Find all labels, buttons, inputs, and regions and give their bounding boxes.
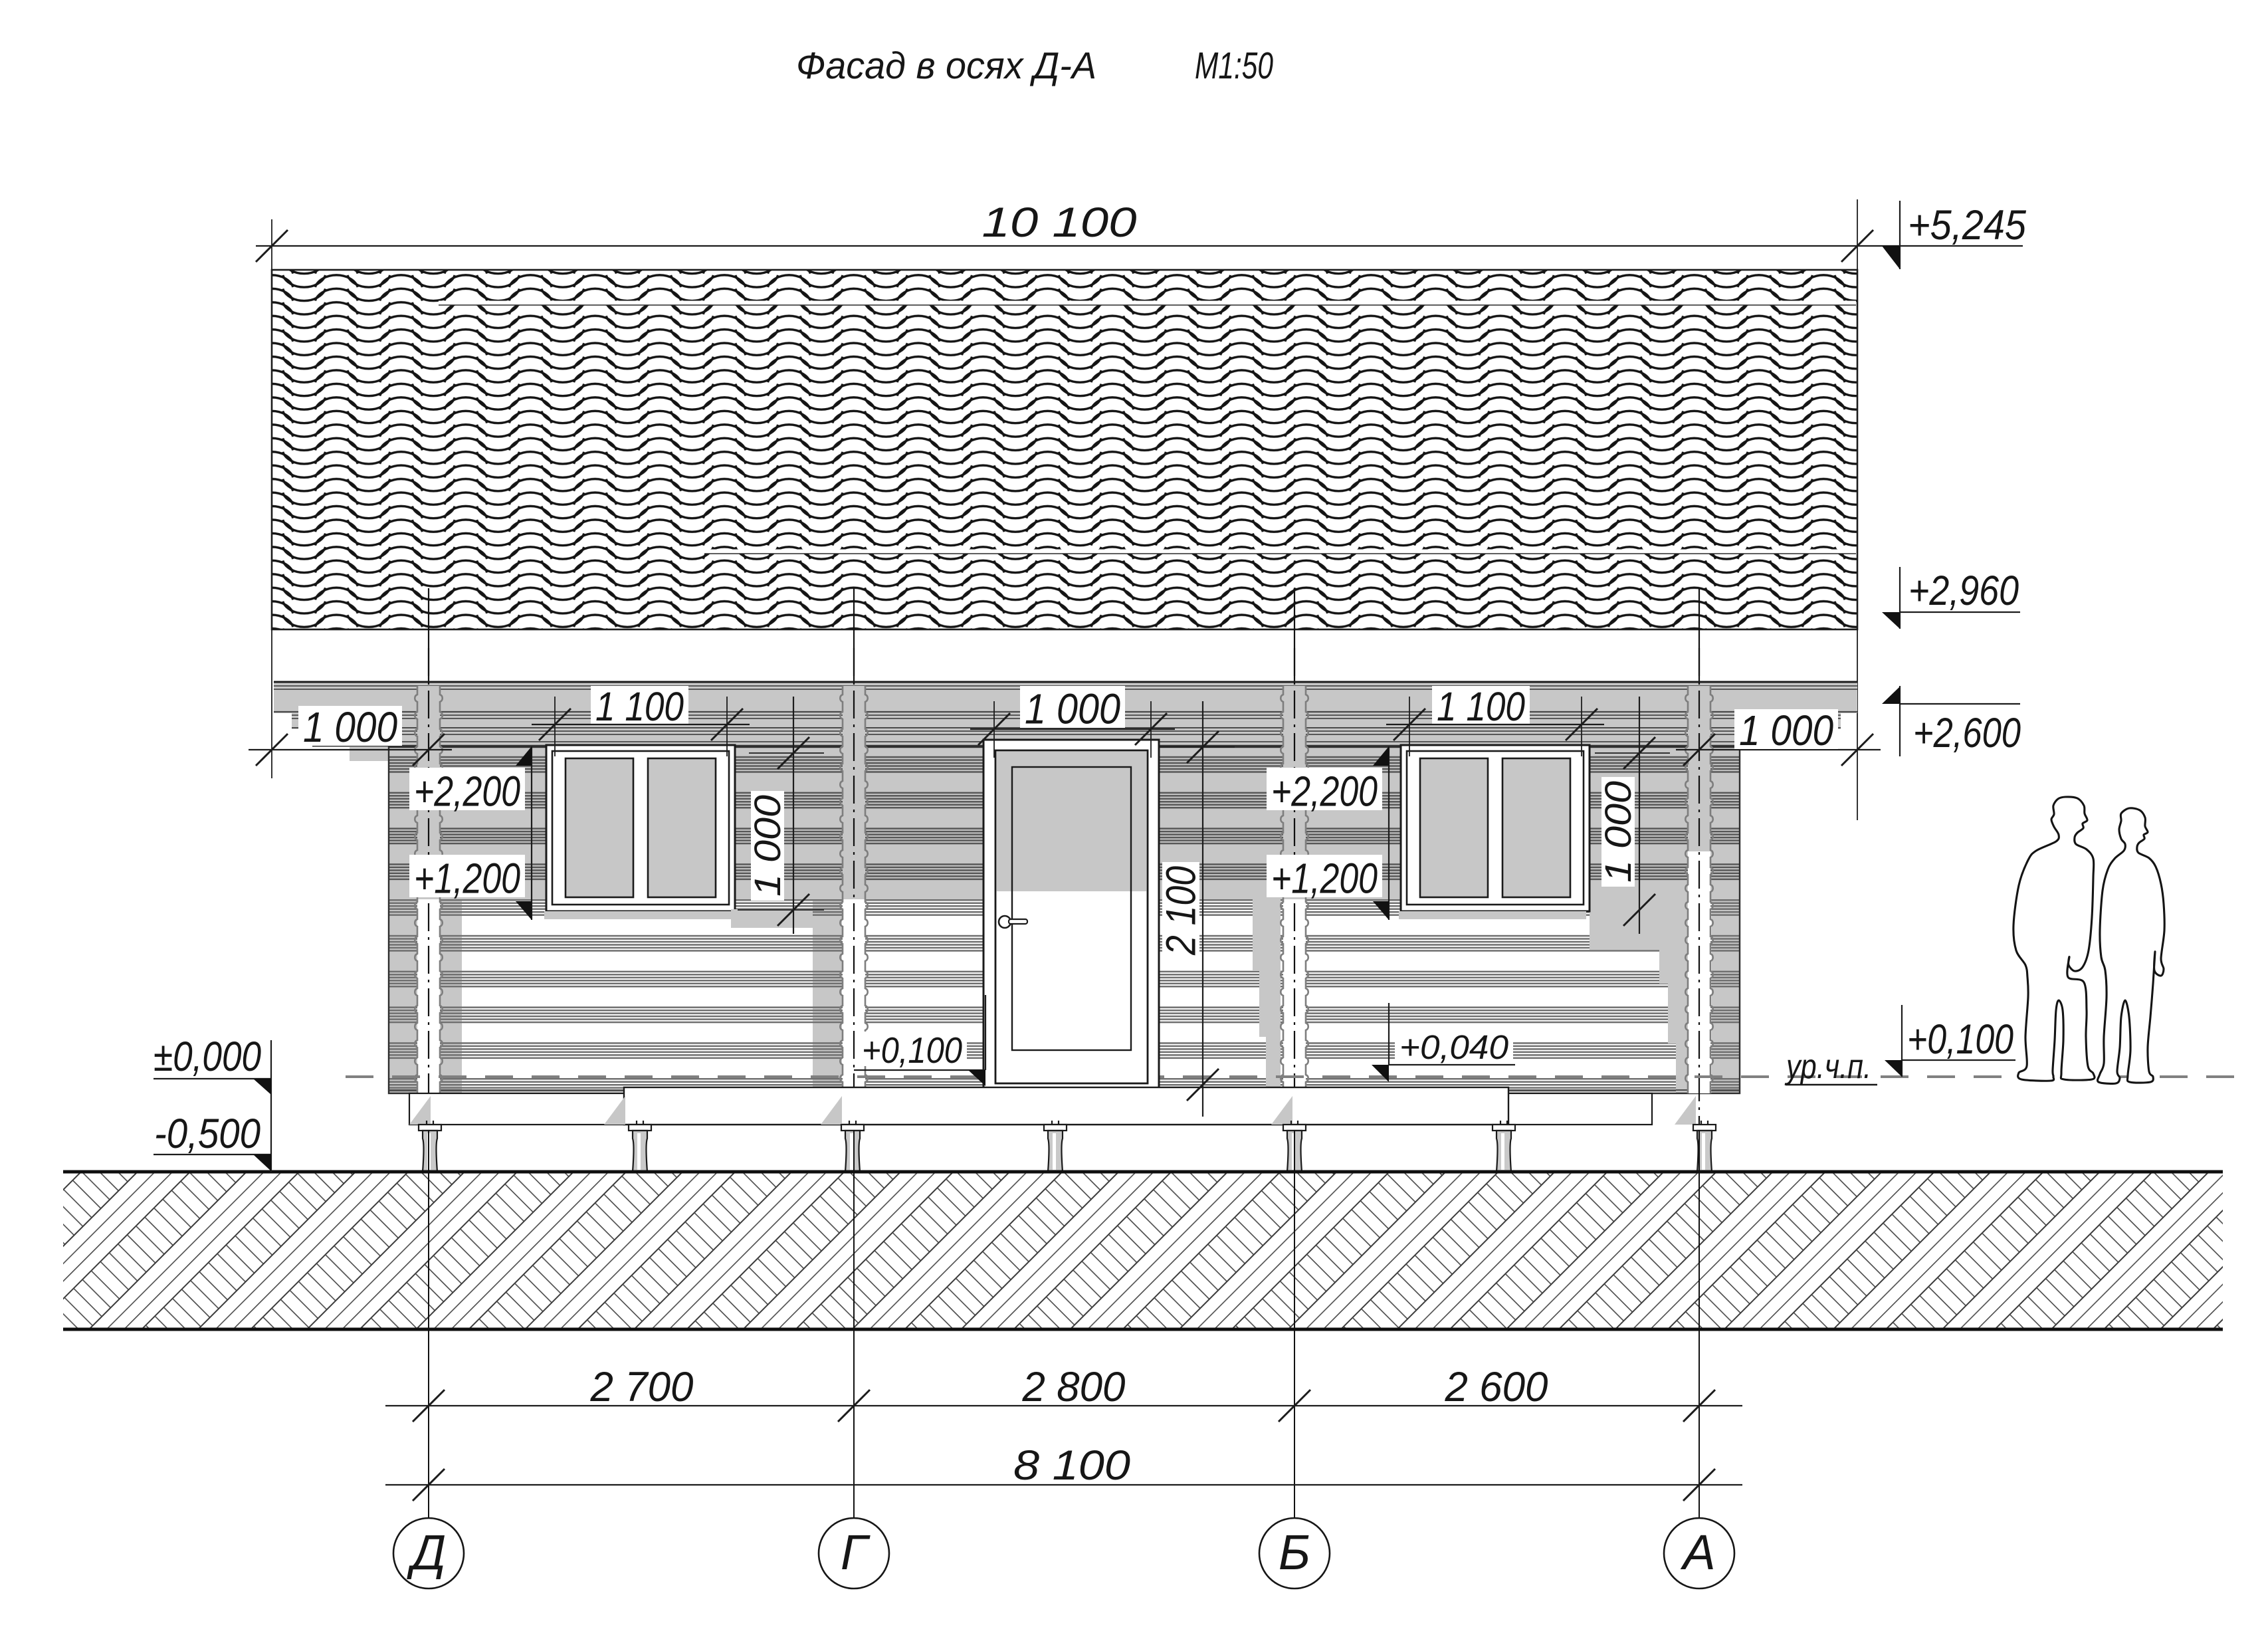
svg-text:+0,100: +0,100 <box>1907 1016 2013 1063</box>
svg-text:-0,500: -0,500 <box>154 1111 260 1157</box>
svg-text:1 000: 1 000 <box>1025 685 1120 733</box>
svg-text:М1:50: М1:50 <box>1195 45 1273 87</box>
svg-text:+1,200: +1,200 <box>1271 855 1378 903</box>
svg-text:1 000: 1 000 <box>1597 781 1639 883</box>
svg-text:±0,000: ±0,000 <box>154 1034 261 1080</box>
svg-text:1 100: 1 100 <box>1437 684 1525 730</box>
svg-text:+2,200: +2,200 <box>414 768 520 816</box>
svg-text:8 100: 8 100 <box>1013 1442 1130 1489</box>
svg-text:А: А <box>1680 1525 1715 1580</box>
svg-text:1 000: 1 000 <box>746 795 788 897</box>
svg-text:2 100: 2 100 <box>1158 866 1204 956</box>
svg-text:+0,100: +0,100 <box>862 1030 962 1071</box>
svg-text:2 700: 2 700 <box>590 1364 694 1410</box>
svg-text:+2,960: +2,960 <box>1908 568 2019 614</box>
svg-text:+5,245: +5,245 <box>1908 202 2027 249</box>
svg-text:+0,040: +0,040 <box>1399 1028 1508 1066</box>
svg-text:Фасад в осях Д-А: Фасад в осях Д-А <box>796 45 1096 87</box>
svg-text:1 000: 1 000 <box>1739 707 1833 754</box>
svg-text:2 800: 2 800 <box>1022 1364 1126 1410</box>
svg-text:10 100: 10 100 <box>982 199 1137 246</box>
svg-text:2 600: 2 600 <box>1445 1364 1548 1410</box>
svg-text:1 100: 1 100 <box>595 684 684 730</box>
svg-text:+2,600: +2,600 <box>1913 710 2021 756</box>
svg-text:Б: Б <box>1279 1525 1310 1580</box>
svg-text:ур.ч.п.: ур.ч.п. <box>1785 1047 1871 1086</box>
svg-text:1 000: 1 000 <box>303 704 397 751</box>
svg-text:+2,200: +2,200 <box>1271 768 1378 816</box>
svg-text:Г: Г <box>841 1525 871 1580</box>
svg-text:+1,200: +1,200 <box>414 855 520 903</box>
svg-text:Д: Д <box>407 1525 446 1580</box>
